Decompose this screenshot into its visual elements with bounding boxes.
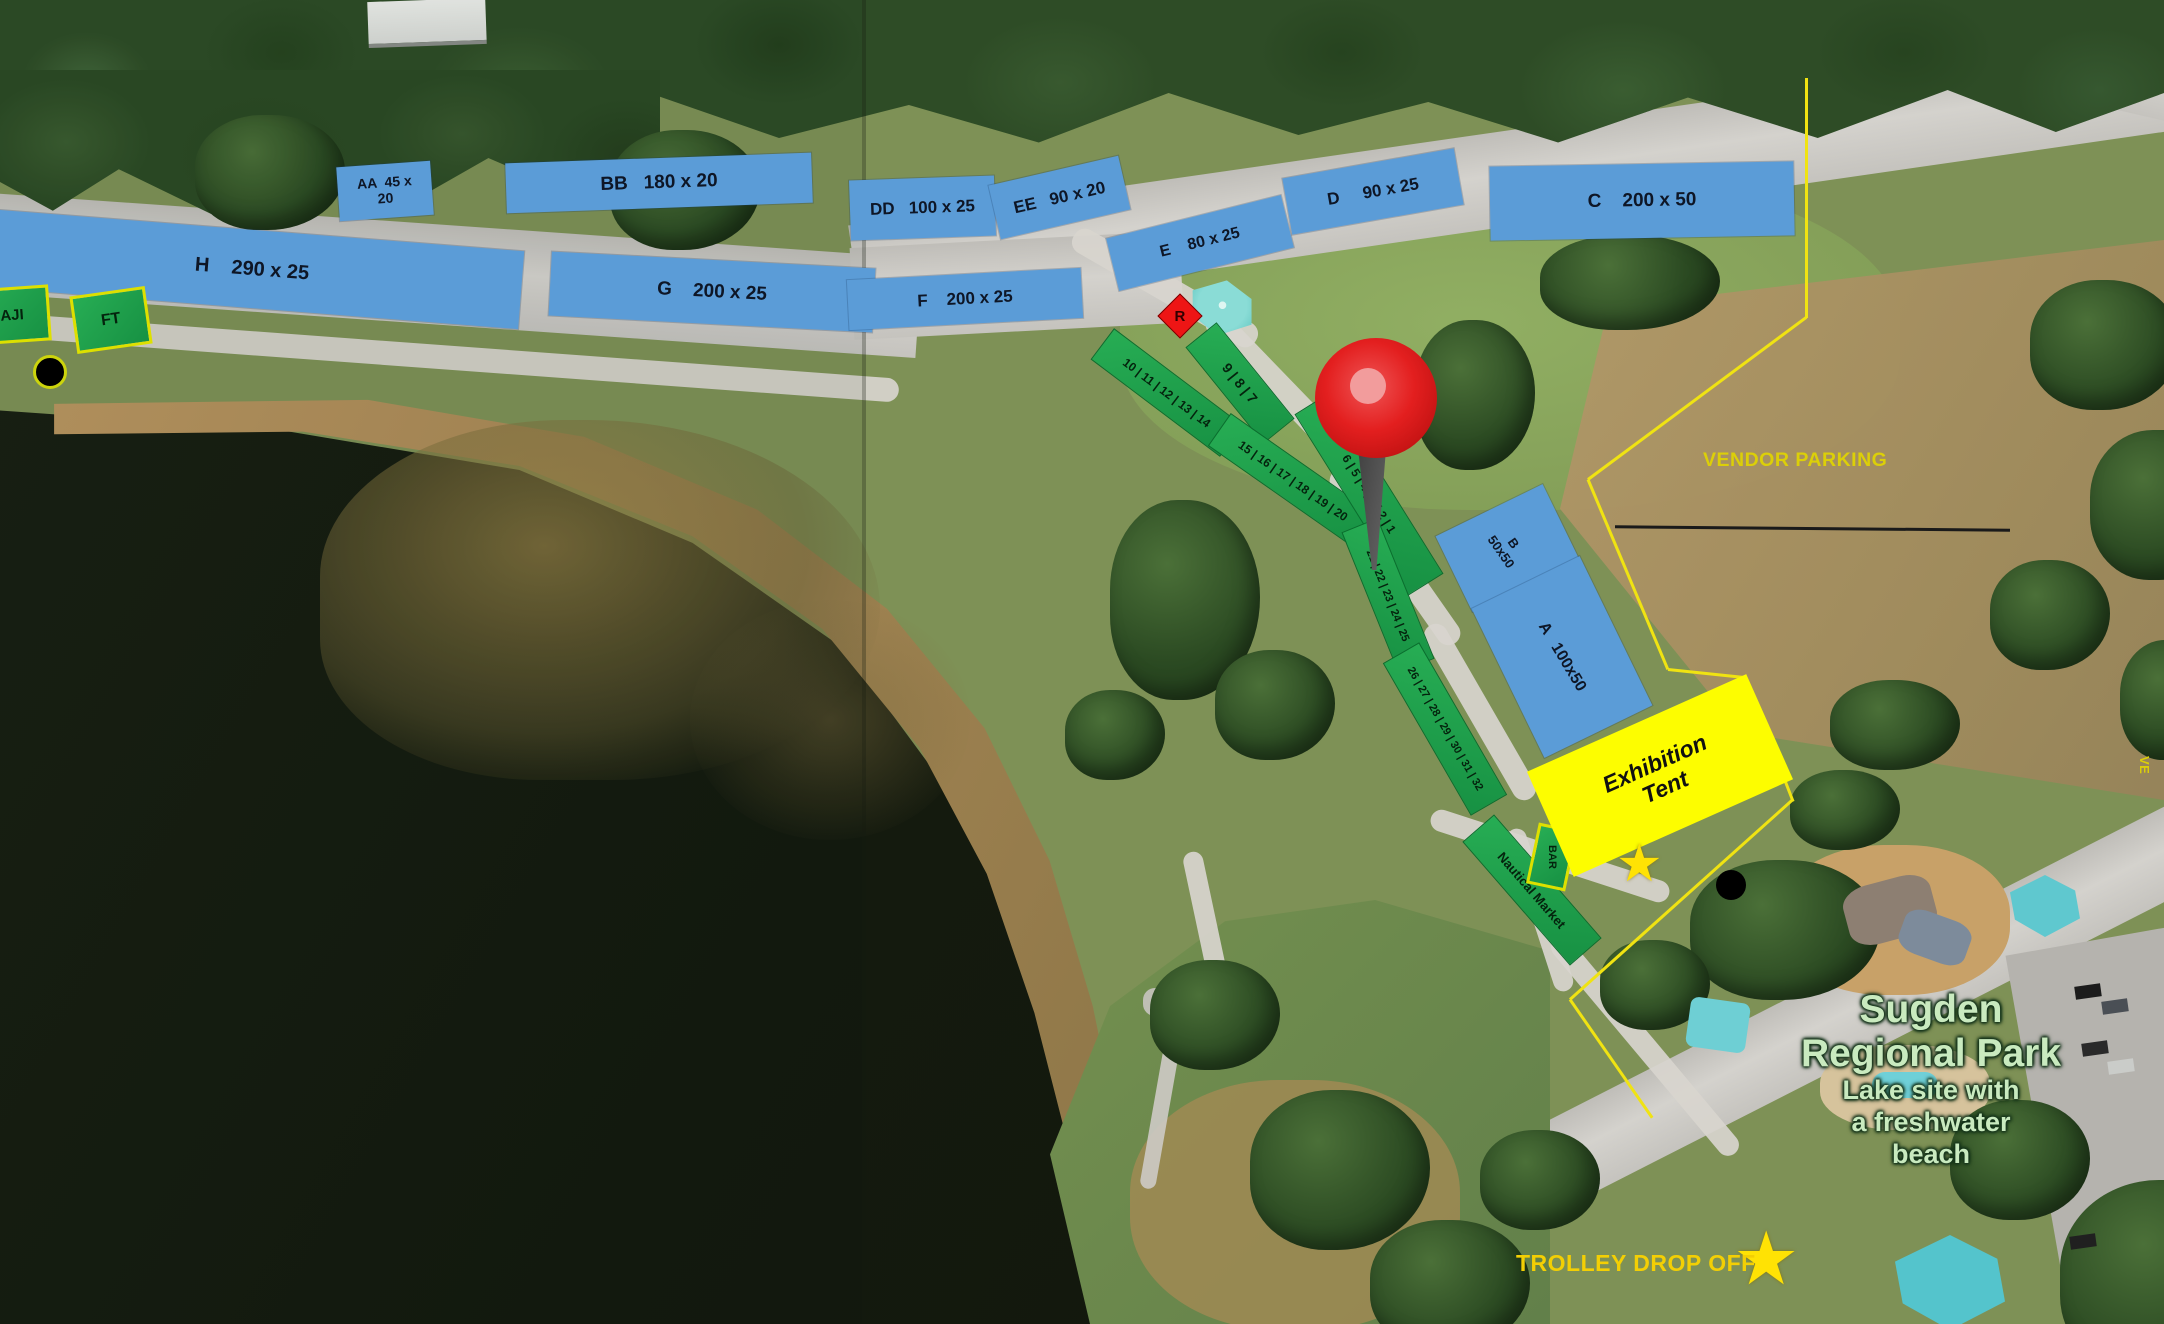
zone-E-label: E 80 x 25 <box>1158 224 1242 261</box>
ft-label: FT <box>100 310 122 331</box>
bar-label: BAR <box>1546 845 1558 869</box>
pin-highlight <box>1350 368 1386 404</box>
zone-BB-label: BB 180 x 20 <box>600 170 718 195</box>
tree <box>2030 280 2164 410</box>
tree <box>1065 690 1165 780</box>
star-icon-exhibition: ★ <box>1616 838 1663 890</box>
zone-DD: DD 100 x 25 <box>849 175 996 240</box>
zone-G-label: G 200 x 25 <box>657 278 768 305</box>
pin-needle <box>1350 448 1394 570</box>
place-label-sub3: beach <box>1786 1139 2076 1171</box>
ft-booth: FT <box>69 286 152 354</box>
place-label-sub1: Lake site with <box>1786 1075 2076 1107</box>
edge-partial-label: VE <box>2137 756 2152 774</box>
zone-C: C 200 x 50 <box>1489 161 1794 240</box>
satellite-map: AA 45 x20 BB 180 x 20 H 290 x 25 G 200 x… <box>0 0 2164 1324</box>
place-label-line2: Regional Park <box>1786 1032 2076 1076</box>
aji-label: AJI <box>0 306 24 325</box>
dot-marker-left <box>33 355 67 389</box>
zone-F-label: F 200 x 25 <box>917 287 1013 311</box>
r-marker-label: R <box>1175 308 1186 325</box>
zone-BB: BB 180 x 20 <box>505 153 813 214</box>
pavilion <box>1685 996 1751 1054</box>
place-label-sub2: a freshwater <box>1786 1107 2076 1139</box>
zone-C-label: C 200 x 50 <box>1587 189 1696 212</box>
zone-D-label: D 90 x 25 <box>1326 174 1421 209</box>
zone-AA: AA 45 x20 <box>336 161 434 221</box>
zone-DD-label: DD 100 x 25 <box>870 197 976 220</box>
aji-booth: AJI <box>0 284 52 345</box>
place-label-line1: Sugden <box>1786 988 2076 1032</box>
zone-H-label: H 290 x 25 <box>194 253 310 284</box>
boundary-line <box>1805 78 1808 318</box>
zone-EE-label: EE 90 x 20 <box>1012 178 1107 218</box>
vendor-parking-label: VENDOR PARKING <box>1703 449 1887 472</box>
pavilion-large <box>1895 1235 2005 1324</box>
tree <box>1480 1130 1600 1230</box>
place-label: Sugden Regional Park Lake site with a fr… <box>1786 988 2076 1171</box>
tree <box>1215 650 1335 760</box>
zone-A-label: A 100x50 <box>1534 619 1589 695</box>
location-pin-icon[interactable] <box>1313 336 1439 572</box>
tree <box>1790 770 1900 850</box>
trolley-drop-off-label: TROLLEY DROP OFF <box>1516 1250 1756 1277</box>
dot-marker-tent <box>1716 870 1746 900</box>
